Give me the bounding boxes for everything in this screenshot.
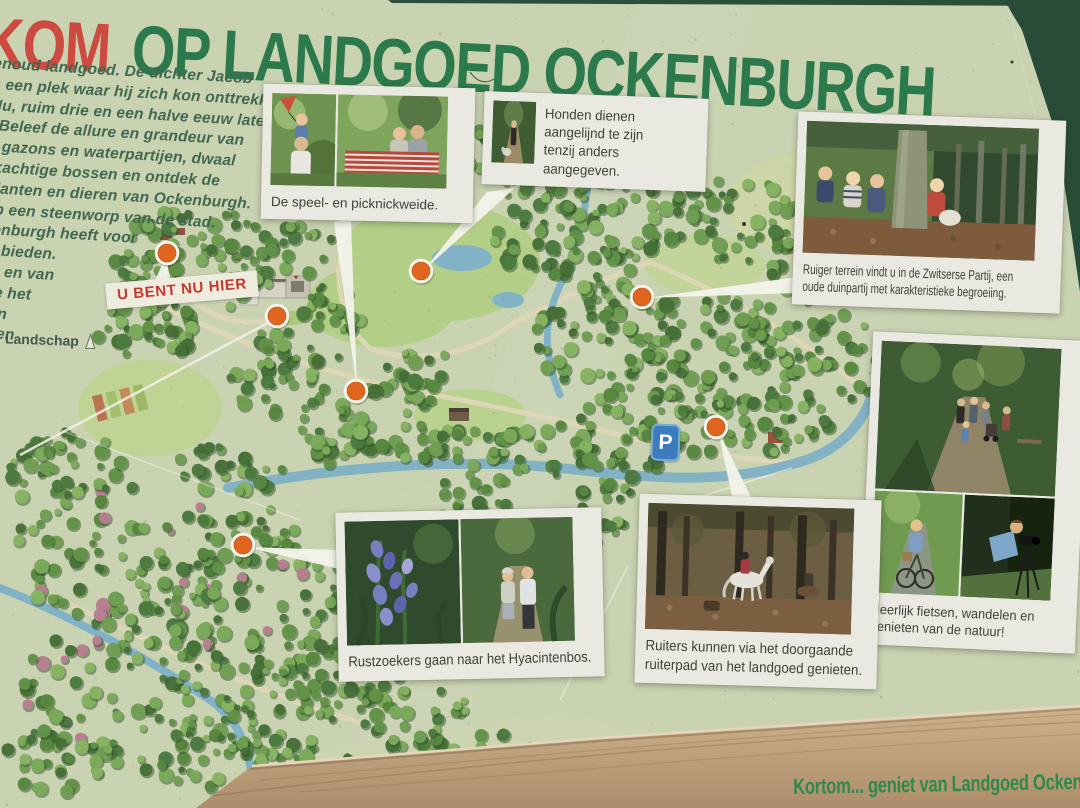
photo-card-zwitserse: Ruiger terrein vindt u in de Zwitserse P… bbox=[792, 111, 1067, 313]
photo-dog-walker bbox=[491, 100, 536, 163]
photo-horse-rider bbox=[645, 503, 854, 635]
photo-picnic-table-couple bbox=[336, 94, 448, 188]
signboard-photo: KOMOP LANDGOED OCKENBURGH enoud landgoed… bbox=[0, 0, 1080, 808]
landschap-logo: Landschap bbox=[5, 329, 97, 349]
sail-icon bbox=[84, 332, 98, 349]
photo-cyclist bbox=[870, 491, 963, 597]
hyacinth-caption: Rustzoekers gaan naar het Hyacintenbos. bbox=[348, 648, 596, 672]
photo-walking-group bbox=[875, 341, 1062, 497]
photo-photographer-tripod bbox=[960, 495, 1055, 601]
photo-kid-with-kite bbox=[270, 93, 336, 186]
picnic-caption: De speel- en picknickweide. bbox=[271, 193, 463, 214]
photo-card-dogs: Honden dienen aangelijnd te zijn tenzij … bbox=[481, 91, 708, 192]
intro-text: enoud landgoed. De dichter Jacobs een pl… bbox=[0, 54, 288, 362]
photo-hyacinth-flowers bbox=[344, 519, 461, 645]
riders-caption: Ruiters kunnen via het doorgaande ruiter… bbox=[645, 637, 869, 680]
photo-children-big-tree bbox=[803, 121, 1039, 261]
landschap-logo-label: Landschap bbox=[5, 330, 79, 349]
dogs-caption: Honden dienen aangelijnd te zijn tenzij … bbox=[543, 104, 692, 182]
photo-card-riders: Ruiters kunnen via het doorgaande ruiter… bbox=[634, 494, 881, 690]
photo-card-picnic: De speel- en picknickweide. bbox=[261, 84, 476, 224]
parking-badge: P bbox=[650, 424, 680, 462]
footer-slogan-text: Kortom... geniet van Landgoed Ockenb bbox=[793, 769, 1080, 800]
photo-card-hyacinth: Rustzoekers gaan naar het Hyacintenbos. bbox=[335, 507, 604, 681]
photo-card-cycling: Heerlijk fietsen, wandelen en genieten v… bbox=[859, 331, 1080, 653]
photo-elderly-couple bbox=[460, 517, 575, 643]
zwitserse-caption: Ruiger terrein vindt u in de Zwitserse P… bbox=[802, 261, 1053, 304]
cycling-caption: Heerlijk fietsen, wandelen en genieten v… bbox=[869, 600, 1068, 643]
